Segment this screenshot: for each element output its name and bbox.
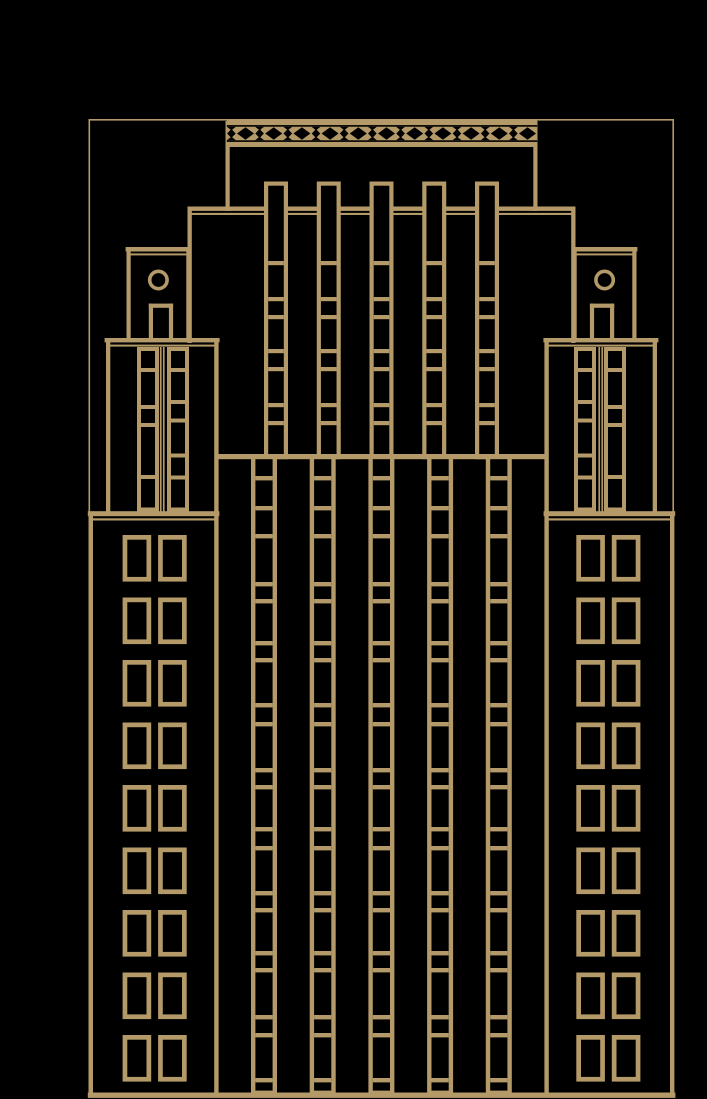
side-left — [88, 247, 220, 1096]
illustration-stage — [0, 0, 707, 1099]
porthole-circle — [150, 271, 167, 288]
ground-line — [88, 1093, 676, 1098]
upper-tier-columns — [264, 182, 499, 460]
shoulder-ledge — [217, 454, 547, 459]
lattice-band — [227, 120, 537, 147]
facade-strips — [251, 454, 512, 1095]
side-right — [543, 247, 675, 1096]
porthole-circle — [596, 271, 613, 288]
skyscraper-illustration — [0, 0, 707, 1099]
